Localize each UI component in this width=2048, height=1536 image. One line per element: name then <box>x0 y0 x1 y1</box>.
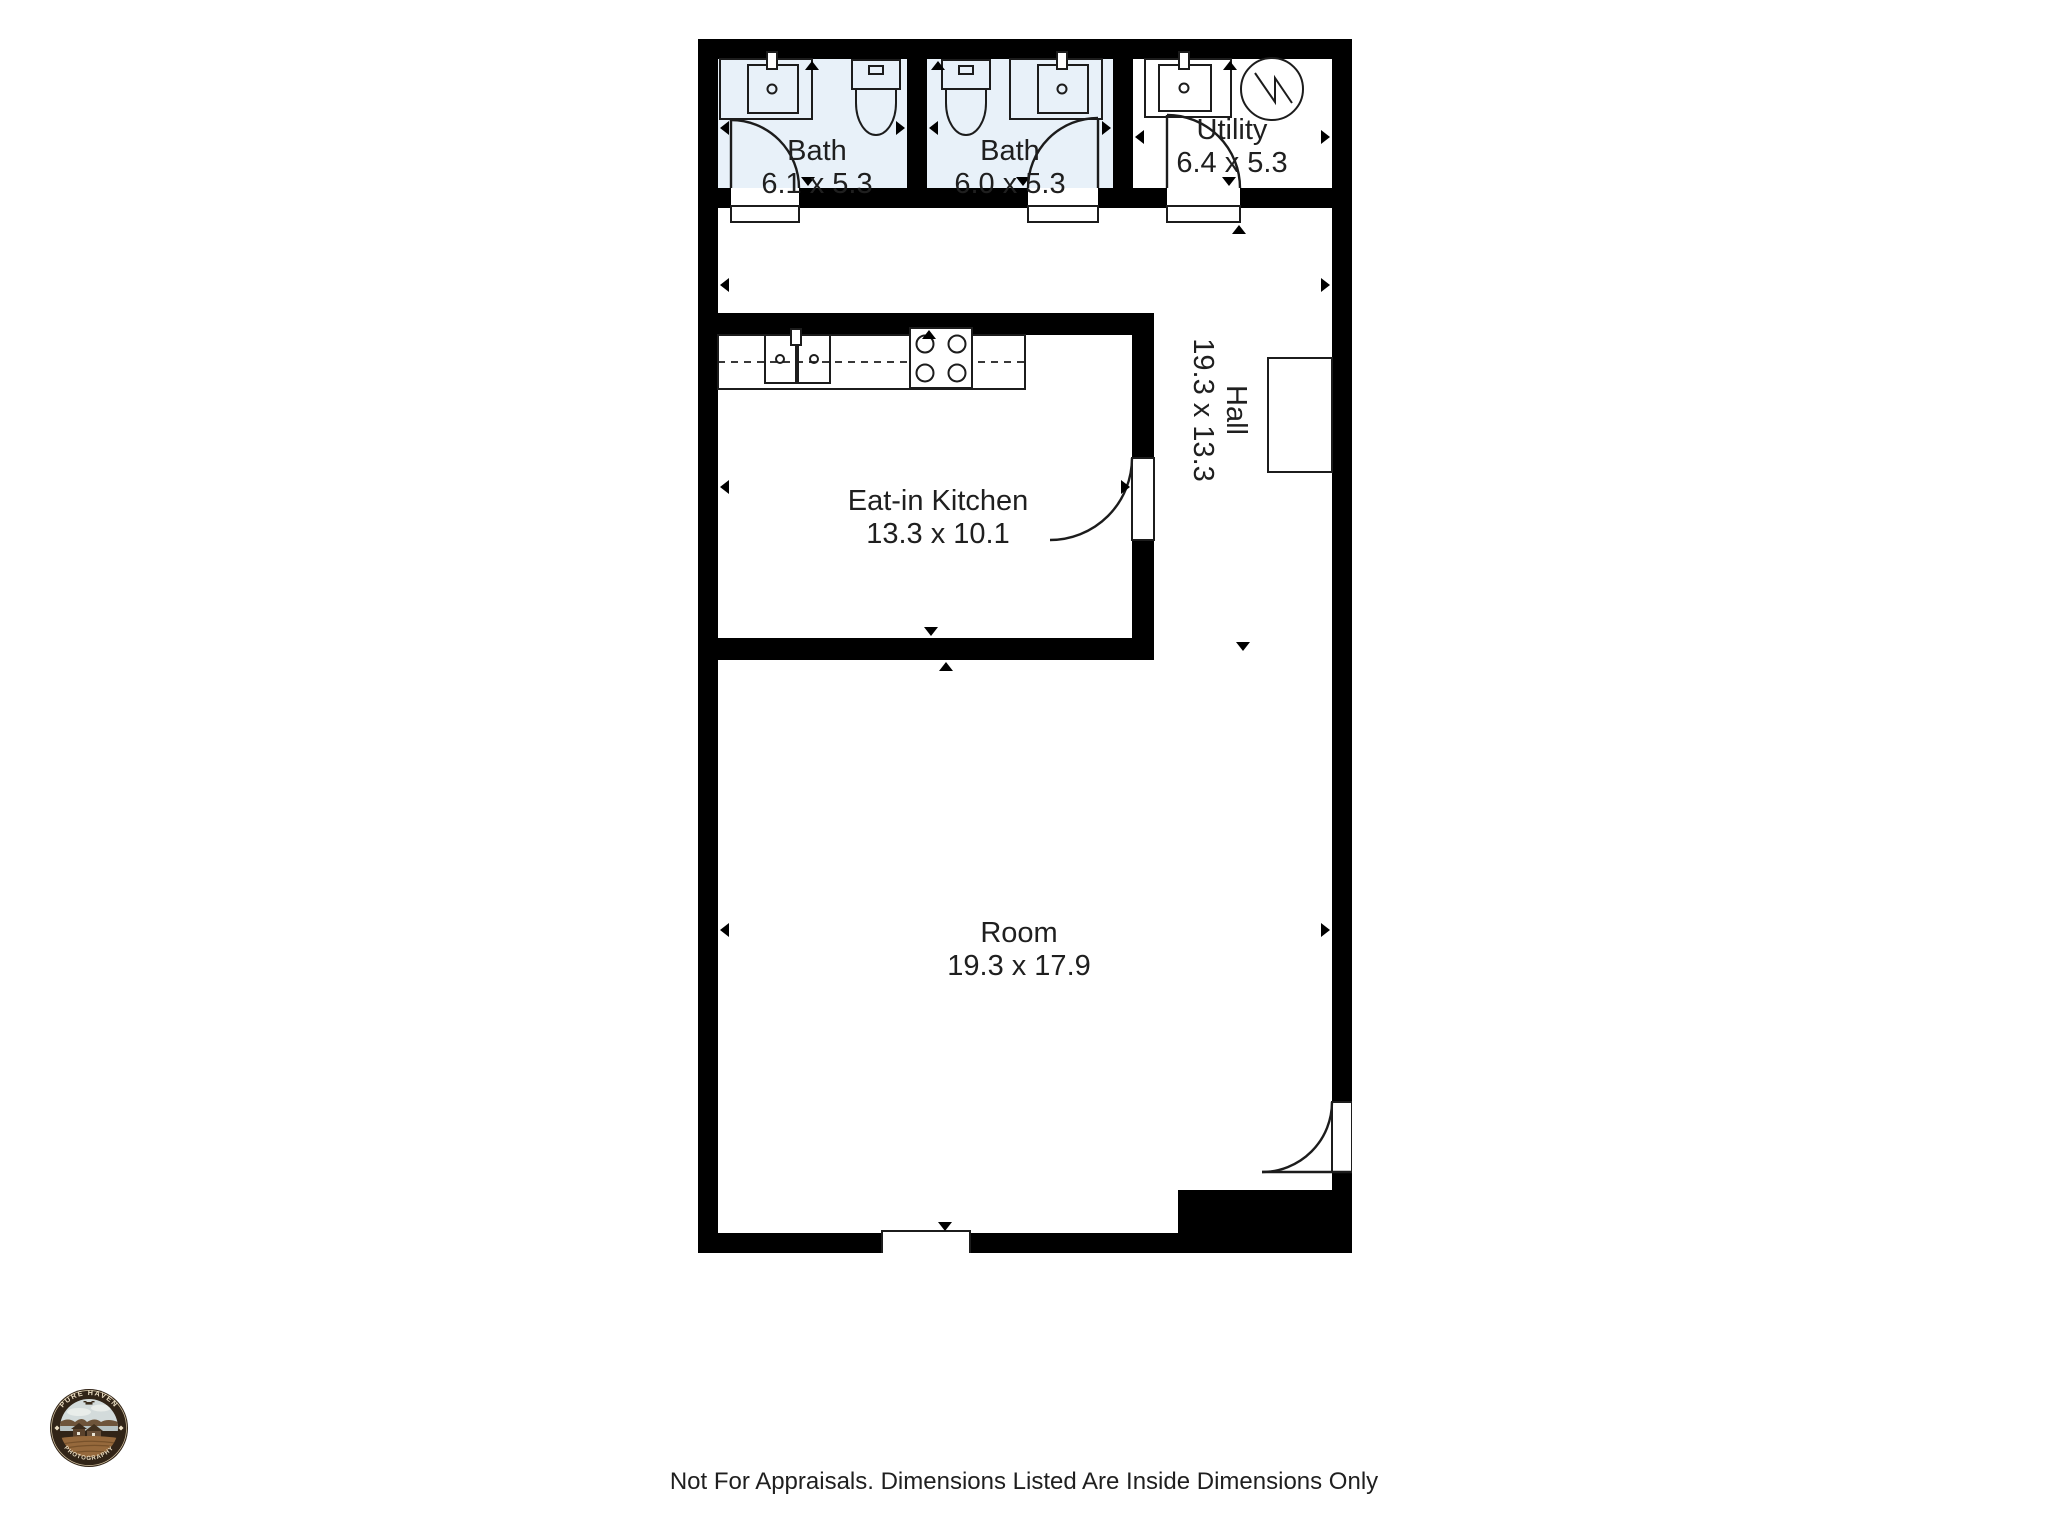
room-name: Utility <box>1176 114 1287 147</box>
arrow-down-icon <box>938 1222 952 1231</box>
water-heater-icon <box>1241 58 1303 120</box>
room-name: Eat-in Kitchen <box>848 485 1029 518</box>
arrow-up-icon <box>1223 61 1237 70</box>
arrow-right-icon <box>1321 278 1330 292</box>
bath-2-label: Bath 6.0 x 5.3 <box>954 135 1065 201</box>
kitchen-door-jamb <box>1132 458 1154 540</box>
room-dims: 13.3 x 10.1 <box>848 518 1029 551</box>
arrow-right-icon <box>1321 923 1330 937</box>
arrow-down-icon <box>924 627 938 636</box>
kitchen-door-icon <box>1050 458 1132 540</box>
floor-plan: Bath 6.1 x 5.3 Bath 6.0 x 5.3 Utility 6.… <box>698 39 1352 1253</box>
logo-badge: PURE HAVEN PHOTOGRAPHY <box>49 1388 129 1468</box>
room-name: Hall <box>1219 338 1252 482</box>
room-label: Room 19.3 x 17.9 <box>947 917 1091 983</box>
kitchen-label: Eat-in Kitchen 13.3 x 10.1 <box>848 485 1029 551</box>
door-openings <box>731 188 1352 1253</box>
room-name: Room <box>947 917 1091 950</box>
sink-icon <box>1010 52 1102 119</box>
footer-disclaimer: Not For Appraisals. Dimensions Listed Ar… <box>0 1468 2048 1496</box>
sink-icon <box>1145 52 1231 117</box>
room-dims: 6.1 x 5.3 <box>761 168 872 201</box>
kitchen-sink-icon <box>765 329 830 383</box>
room-dims: 19.3 x 13.3 <box>1186 338 1219 482</box>
arrow-left-icon <box>720 278 729 292</box>
arrow-up-icon <box>1232 225 1246 234</box>
bath-1-label: Bath 6.1 x 5.3 <box>761 135 872 201</box>
room-dims: 6.4 x 5.3 <box>1176 147 1287 180</box>
hall-label: Hall 19.3 x 13.3 <box>1186 338 1252 482</box>
entry-door-jamb <box>882 1231 970 1253</box>
room-dims: 19.3 x 17.9 <box>947 950 1091 983</box>
hall-closet <box>1268 358 1332 472</box>
utility-door-jamb <box>1167 206 1240 222</box>
bath-2-fixtures <box>942 52 1102 135</box>
arrow-right-icon <box>896 121 905 135</box>
arrow-right-icon <box>1321 130 1330 144</box>
plan-linework <box>698 39 1352 1253</box>
room-name: Bath <box>761 135 872 168</box>
corner-block <box>1178 1190 1352 1253</box>
utility-label: Utility 6.4 x 5.3 <box>1176 114 1287 180</box>
bath-1-door-jamb <box>731 206 799 222</box>
sink-icon <box>720 52 812 119</box>
door-swings <box>731 115 1352 1253</box>
utility-fixtures <box>1145 52 1303 120</box>
room-name: Bath <box>954 135 1065 168</box>
arrow-up-icon <box>805 61 819 70</box>
arrow-up-icon <box>939 662 953 671</box>
toilet-icon <box>852 60 900 135</box>
arrow-left-icon <box>720 121 729 135</box>
kitchen-fixtures <box>718 328 1025 389</box>
toilet-icon <box>942 60 990 135</box>
floor-plan-page: Bath 6.1 x 5.3 Bath 6.0 x 5.3 Utility 6.… <box>0 0 2048 1536</box>
room-side-door-jamb <box>1332 1102 1352 1172</box>
bath-2-door-jamb <box>1028 206 1098 222</box>
arrow-left-icon <box>720 480 729 494</box>
arrow-left-icon <box>720 923 729 937</box>
arrow-down-icon <box>1236 642 1250 651</box>
room-dims: 6.0 x 5.3 <box>954 168 1065 201</box>
arrow-right-icon <box>1102 121 1111 135</box>
arrow-left-icon <box>1135 130 1144 144</box>
stove-icon <box>910 328 972 388</box>
arrow-left-icon <box>929 121 938 135</box>
